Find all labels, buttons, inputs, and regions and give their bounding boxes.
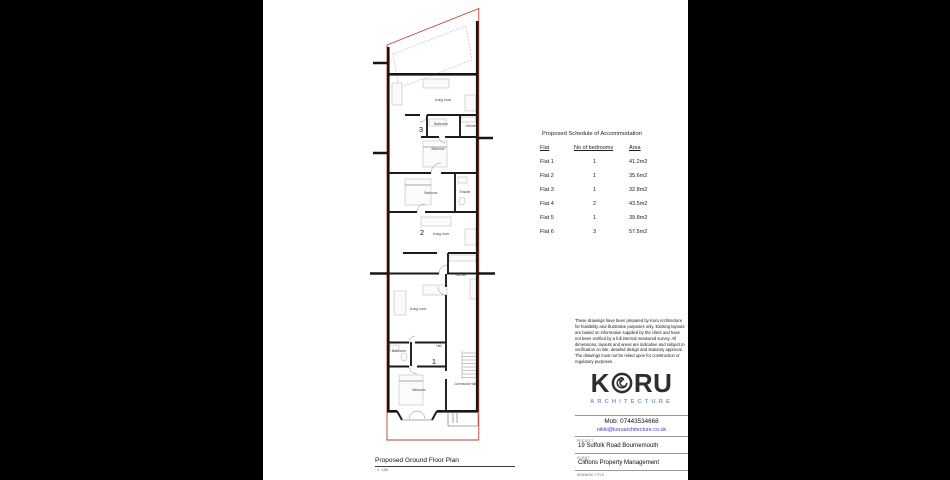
- room-label: Kitchen: [456, 273, 467, 277]
- room-label: Bathroom: [392, 349, 406, 353]
- schedule-cell-flat: Flat 3: [540, 187, 574, 193]
- schedule-cell-flat: Flat 5: [540, 215, 574, 221]
- schedule-cell-flat: Flat 4: [540, 201, 574, 207]
- schedule-title: Proposed Schedule of Accommodation: [542, 131, 680, 137]
- mobile-number: Mob: 07443534668: [575, 418, 688, 425]
- flat-number: 1: [432, 357, 436, 366]
- logo-letters-ru: RU: [634, 370, 673, 396]
- schedule-rows: Flat 1141.2m2Flat 2135.6m2Flat 3132.8m2F…: [540, 159, 680, 243]
- drawing-title-label: DRAWING TITLE: [577, 473, 604, 477]
- client-label: CLIENT: [577, 456, 590, 460]
- schedule-cell-bedrooms: 1: [574, 159, 629, 165]
- schedule-row: Flat 5139.8m2: [540, 215, 680, 229]
- disclaimer-note: These drawings have been prepared by Kor…: [575, 318, 685, 365]
- email-link[interactable]: nikki@koruarchitecture.co.uk: [575, 427, 688, 433]
- schedule-cell-flat: Flat 1: [540, 159, 574, 165]
- room-label: Bathroom: [434, 122, 448, 126]
- logo-subtitle: ARCHITECTURE: [575, 399, 688, 405]
- room-label: Communal Hall: [454, 382, 476, 386]
- schedule-cell-flat: Flat 6: [540, 229, 574, 235]
- schedule-cell-area: 39.8m2: [629, 215, 674, 221]
- schedule-header: Flat No of bedrooms Area: [540, 145, 680, 159]
- room-label: Ensuite: [460, 190, 471, 194]
- schedule-cell-area: 57.5m2: [629, 229, 674, 235]
- titleblock-divider: [575, 415, 688, 416]
- schedule-row: Flat 3132.8m2: [540, 187, 680, 201]
- titleblock-divider: [575, 453, 688, 454]
- entrance-steps: [402, 413, 478, 426]
- schedule-row: Flat 6357.5m2: [540, 229, 680, 243]
- drawing-sheet: Living roomBathroomKitchenBedroomBedroom…: [263, 0, 688, 480]
- schedule-row: Flat 2135.6m2: [540, 173, 680, 187]
- view-title-rule: [375, 466, 515, 467]
- flat-number: 2: [420, 228, 424, 237]
- col-area: Area: [629, 145, 641, 151]
- view-title-block: Proposed Ground Floor Plan 1 : 100: [375, 457, 515, 472]
- col-flat: Flat: [540, 145, 549, 151]
- schedule-row: Flat 4243.5m2: [540, 201, 680, 215]
- logo-letter-k: K: [591, 370, 610, 396]
- schedule-cell-area: 43.5m2: [629, 201, 674, 207]
- client-value: Cliftons Property Management: [578, 460, 659, 466]
- room-label: Living room: [433, 232, 450, 236]
- room-label: Hall: [436, 344, 442, 348]
- view-scale: 1 : 100: [377, 468, 515, 472]
- schedule-cell-bedrooms: 2: [574, 201, 629, 207]
- project-label: PROJECT: [577, 439, 593, 443]
- koru-spiral-icon: [611, 372, 633, 394]
- view-title: Proposed Ground Floor Plan: [375, 457, 515, 464]
- schedule-cell-bedrooms: 3: [574, 229, 629, 235]
- schedule-cell-area: 35.6m2: [629, 173, 674, 179]
- dashed-plot-outline: [393, 26, 472, 88]
- schedule-cell-area: 41.2m2: [629, 159, 674, 165]
- room-label: Living room: [410, 307, 427, 311]
- schedule-of-accommodation: Proposed Schedule of Accommodation Flat …: [540, 131, 680, 243]
- project-value: 19 Suffolk Road Bournemouth: [578, 443, 658, 449]
- schedule-cell-area: 32.8m2: [629, 187, 674, 193]
- floor-plan-svg: Living roomBathroomKitchenBedroomBedroom…: [365, 3, 500, 453]
- room-label: Bedroom: [413, 388, 426, 392]
- titleblock-divider: [575, 436, 688, 437]
- flat-number: 3: [419, 125, 423, 134]
- schedule-cell-flat: Flat 2: [540, 173, 574, 179]
- schedule-cell-bedrooms: 1: [574, 187, 629, 193]
- schedule-cell-bedrooms: 1: [574, 173, 629, 179]
- schedule-row: Flat 1141.2m2: [540, 159, 680, 173]
- col-bedrooms: No of bedrooms: [574, 145, 613, 151]
- room-label: Living room: [435, 98, 452, 102]
- stairs: [462, 351, 477, 379]
- room-label: Bedroom: [432, 147, 445, 151]
- room-label: Bedroom: [425, 191, 438, 195]
- titleblock-divider: [575, 470, 688, 471]
- schedule-cell-bedrooms: 1: [574, 215, 629, 221]
- koru-logo: K RU ARCHITECTURE: [575, 370, 688, 405]
- room-label: Kitchen: [466, 124, 477, 128]
- koru-logo-text: K RU: [575, 370, 688, 396]
